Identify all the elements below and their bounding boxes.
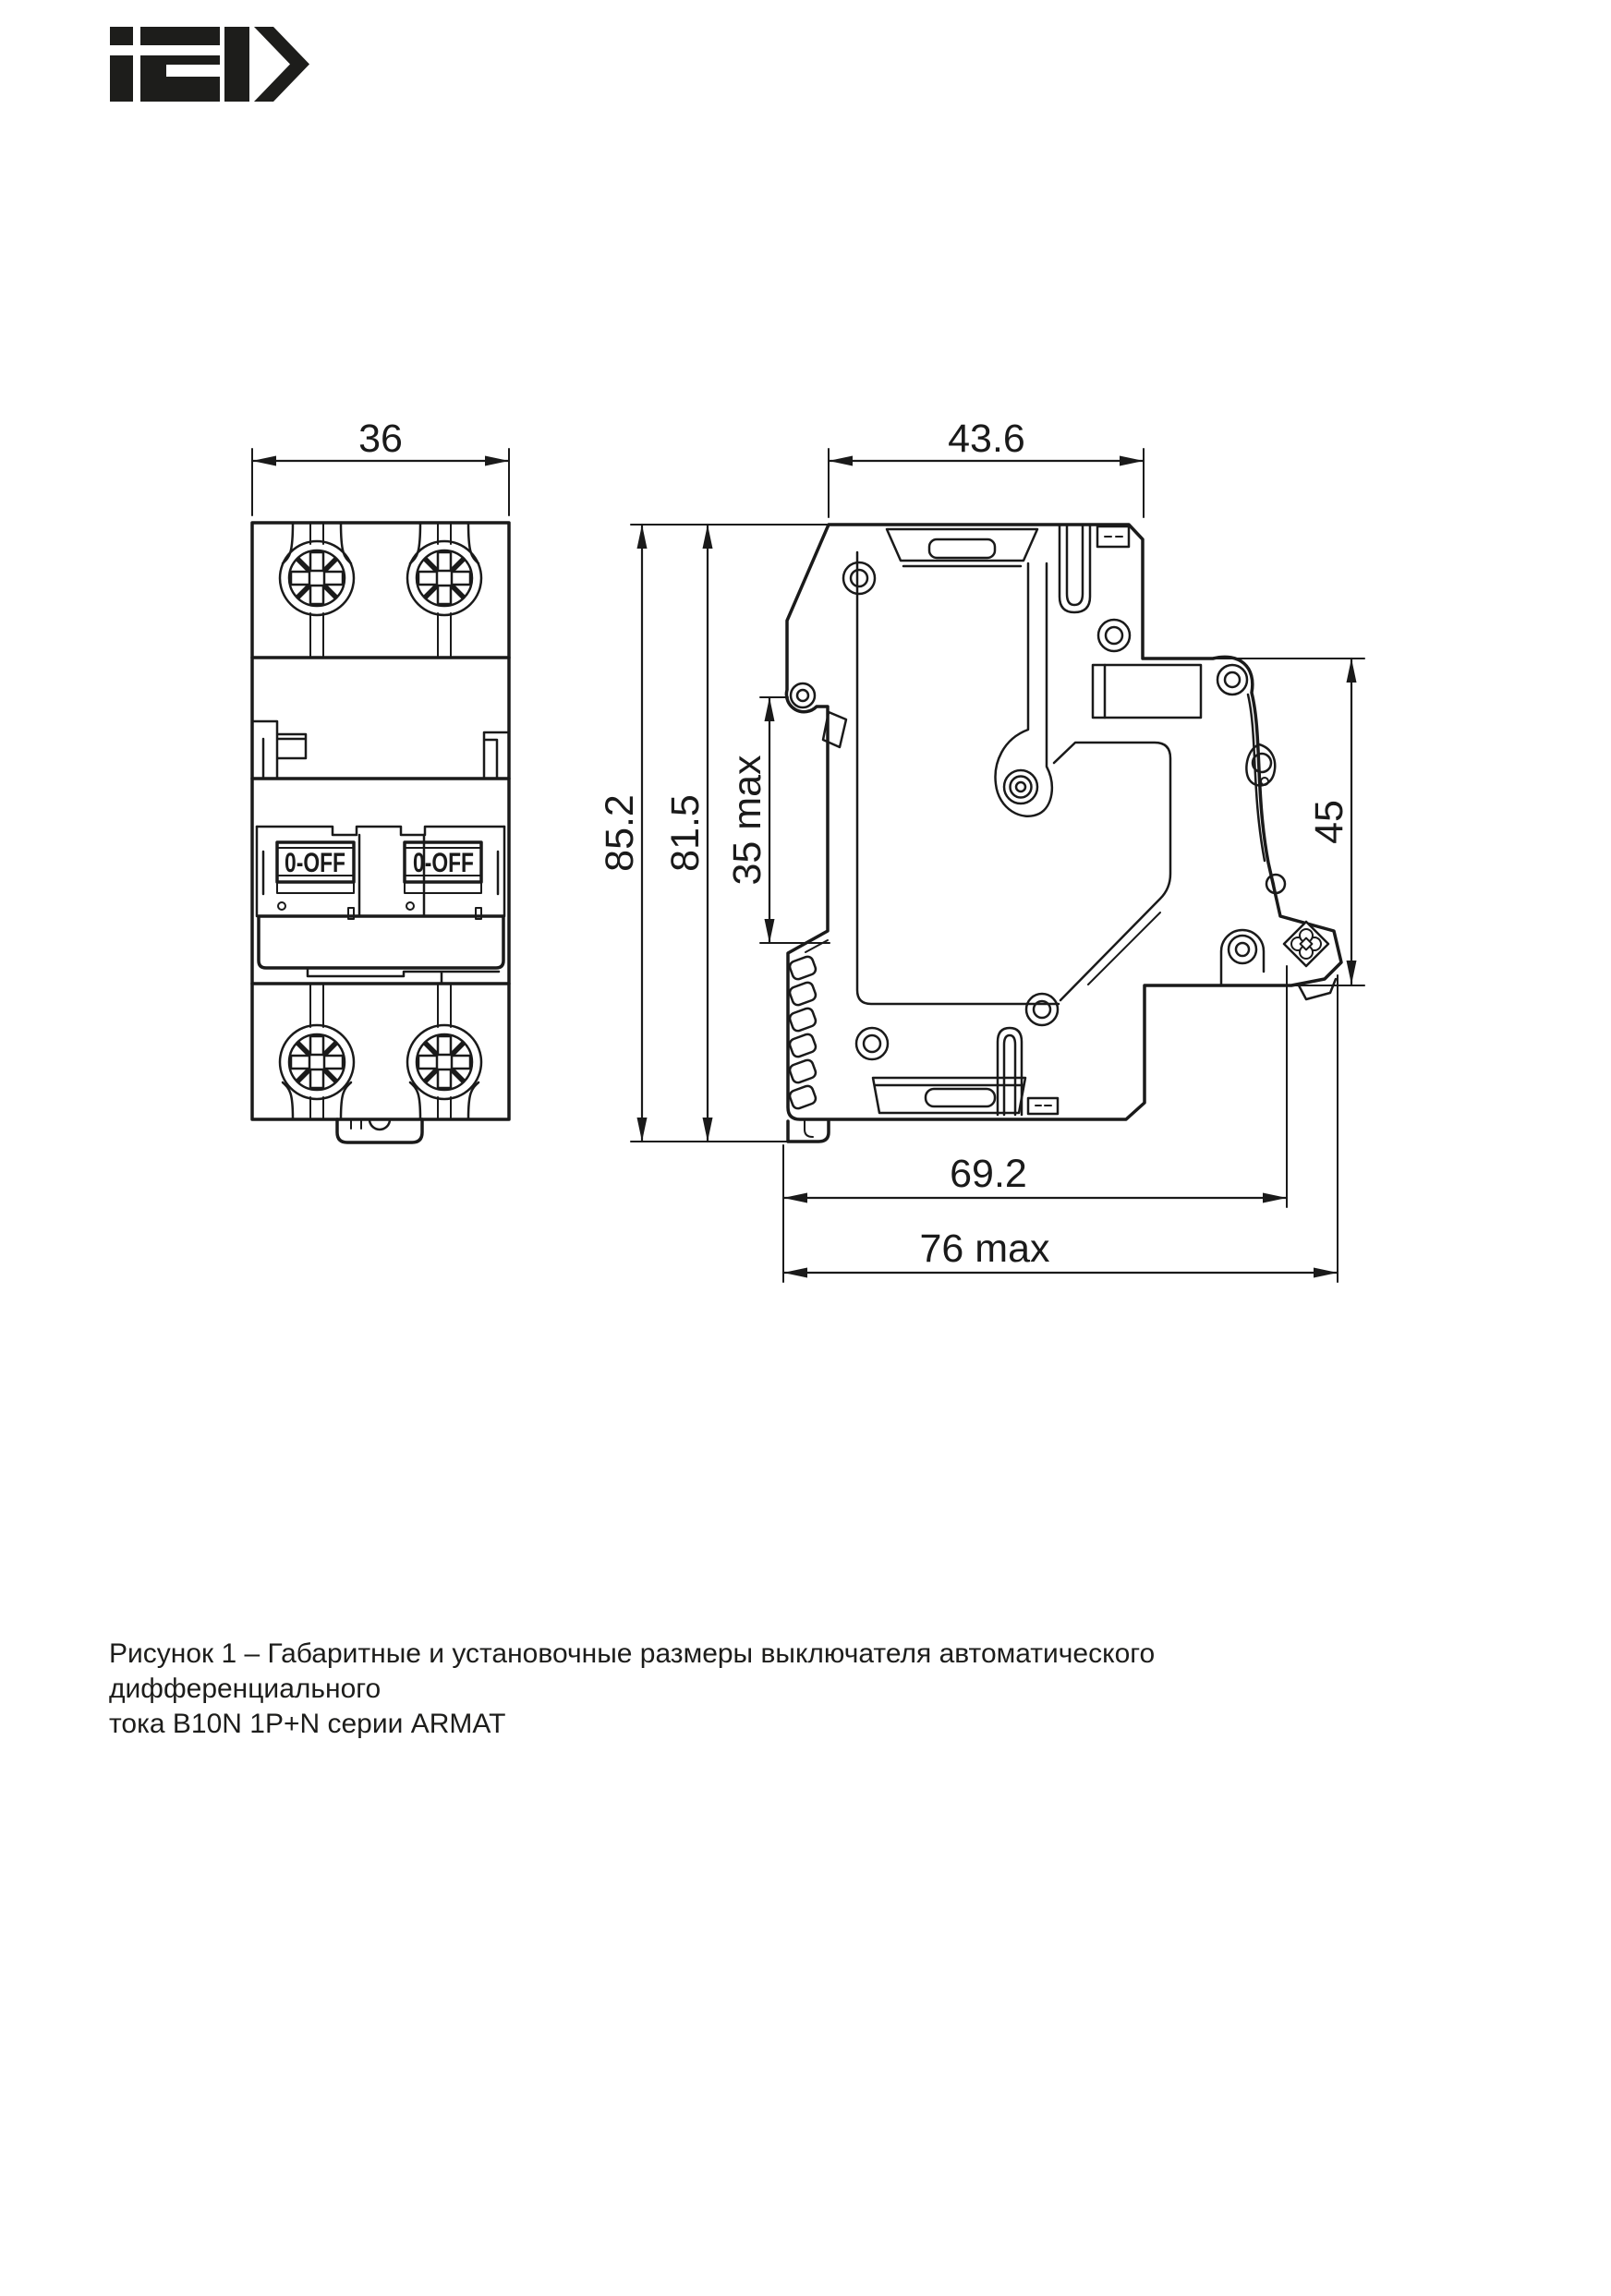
dim-76-max: 76 max bbox=[919, 1227, 1050, 1271]
front-side-steps bbox=[252, 721, 509, 779]
front-view: 0-OFF 0-OFF bbox=[252, 417, 509, 1142]
dim-69-2: 69.2 bbox=[950, 1152, 1027, 1196]
figure-caption-line1: Рисунок 1 – Габаритные и установочные ра… bbox=[109, 1637, 1365, 1707]
side-vent-slots bbox=[788, 940, 828, 1110]
front-bottom-screw-right bbox=[407, 984, 481, 1118]
front-din-clip bbox=[337, 1119, 422, 1142]
dimension-drawing: 0-OFF 0-OFF bbox=[0, 0, 1611, 1385]
front-top-screw-right bbox=[407, 523, 481, 658]
side-height-dimensions: 85.2 81.5 bbox=[598, 525, 829, 1142]
front-toggle-plate: 0-OFF 0-OFF bbox=[257, 827, 504, 919]
dim-45: 45 bbox=[1307, 800, 1351, 844]
dim-81-5: 81.5 bbox=[663, 794, 708, 872]
side-bottom-dashed-block bbox=[1028, 1098, 1058, 1114]
dim-35-max: 35 max bbox=[725, 755, 769, 886]
side-top-slot bbox=[1060, 525, 1090, 612]
side-screw-4 bbox=[1026, 994, 1058, 1025]
side-right-block bbox=[1093, 665, 1201, 718]
front-bottom-screw-left bbox=[280, 984, 354, 1118]
side-view: 43.6 85.2 81.5 35 max 45 bbox=[598, 417, 1364, 1282]
side-depth-dimension: 43.6 bbox=[829, 417, 1144, 517]
front-top-screw-left bbox=[280, 523, 354, 658]
side-max-depth-dimension: 76 max bbox=[783, 975, 1338, 1282]
side-pivot-boss bbox=[996, 563, 1052, 816]
dim-36: 36 bbox=[358, 417, 403, 461]
side-din-dimension: 35 max bbox=[725, 697, 830, 943]
side-screw-1 bbox=[843, 562, 875, 594]
dim-43-6: 43.6 bbox=[948, 417, 1025, 461]
toggle-label-right: 0-OFF bbox=[413, 848, 474, 878]
side-bottom-slot bbox=[998, 1028, 1022, 1115]
figure-caption-line2: тока B10N 1P+N серии ARMAT bbox=[109, 1707, 1365, 1742]
document-page: 0-OFF 0-OFF bbox=[0, 0, 1611, 2296]
front-width-dimension: 36 bbox=[252, 417, 509, 515]
side-din-clip-foot bbox=[788, 1121, 829, 1142]
side-top-dashed-block bbox=[1097, 526, 1129, 547]
side-screw-2 bbox=[1098, 620, 1130, 651]
figure-caption: Рисунок 1 – Габаритные и установочные ра… bbox=[109, 1637, 1365, 1742]
dim-85-2: 85.2 bbox=[598, 794, 642, 872]
side-handle bbox=[791, 683, 846, 747]
side-din-seat bbox=[873, 1078, 1025, 1113]
front-toggle-tiebar bbox=[259, 916, 503, 984]
toggle-label-left: 0-OFF bbox=[285, 848, 345, 878]
side-screw-3 bbox=[856, 1028, 888, 1059]
side-top-face bbox=[887, 529, 1037, 566]
